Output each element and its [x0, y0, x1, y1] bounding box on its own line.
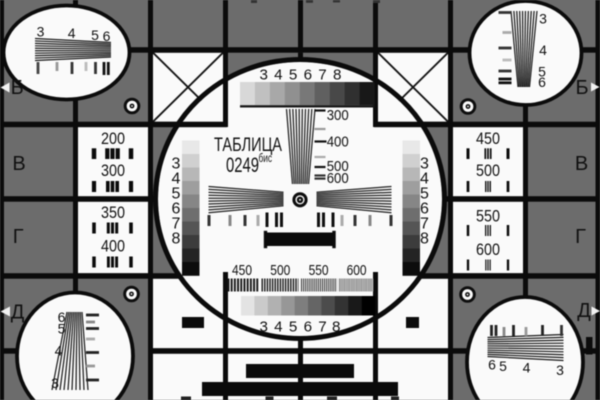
- svg-text:8: 8: [333, 67, 341, 84]
- svg-text:Г: Г: [13, 226, 24, 248]
- svg-text:300: 300: [327, 107, 349, 124]
- svg-text:400: 400: [101, 238, 125, 256]
- svg-text:6: 6: [304, 319, 312, 336]
- svg-text:4: 4: [274, 67, 282, 84]
- svg-text:5: 5: [499, 358, 507, 374]
- svg-text:3: 3: [556, 362, 564, 378]
- svg-text:Б: Б: [575, 77, 588, 99]
- svg-text:Д: Д: [577, 300, 591, 322]
- svg-text:6: 6: [538, 74, 546, 90]
- svg-text:6: 6: [103, 28, 111, 44]
- svg-text:3: 3: [539, 11, 547, 27]
- svg-text:450: 450: [476, 130, 500, 148]
- svg-text:бис: бис: [259, 153, 273, 165]
- svg-text:350: 350: [101, 204, 125, 222]
- svg-text:8: 8: [420, 231, 429, 248]
- svg-text:500: 500: [270, 262, 290, 279]
- svg-text:Д: Д: [11, 302, 25, 324]
- svg-text:4: 4: [68, 25, 76, 41]
- svg-text:0249: 0249: [226, 154, 259, 177]
- svg-text:300: 300: [101, 162, 125, 180]
- svg-text:4: 4: [55, 343, 63, 359]
- svg-text:В: В: [575, 153, 588, 175]
- svg-text:5: 5: [91, 27, 99, 43]
- svg-text:6: 6: [488, 357, 496, 373]
- svg-text:7: 7: [318, 67, 326, 84]
- svg-text:600: 600: [476, 241, 500, 259]
- svg-text:Б: Б: [11, 77, 24, 99]
- svg-text:5: 5: [289, 67, 297, 84]
- svg-text:7: 7: [318, 319, 326, 336]
- svg-text:Г: Г: [575, 226, 586, 248]
- svg-text:4: 4: [539, 42, 547, 58]
- svg-text:500: 500: [476, 162, 500, 180]
- svg-text:В: В: [12, 153, 25, 175]
- svg-text:3: 3: [259, 67, 267, 84]
- svg-text:550: 550: [309, 262, 329, 279]
- svg-text:5: 5: [289, 319, 297, 336]
- svg-text:3: 3: [37, 24, 45, 40]
- svg-text:4: 4: [274, 319, 282, 336]
- svg-text:600: 600: [347, 262, 367, 279]
- svg-text:550: 550: [476, 208, 500, 226]
- svg-text:600: 600: [327, 170, 349, 187]
- svg-text:3: 3: [51, 375, 59, 391]
- svg-text:8: 8: [172, 231, 181, 248]
- svg-text:400: 400: [327, 134, 349, 151]
- svg-text:5: 5: [58, 321, 66, 337]
- svg-text:4: 4: [523, 360, 531, 376]
- svg-text:6: 6: [304, 67, 312, 84]
- svg-text:450: 450: [232, 262, 252, 279]
- svg-text:200: 200: [101, 130, 125, 148]
